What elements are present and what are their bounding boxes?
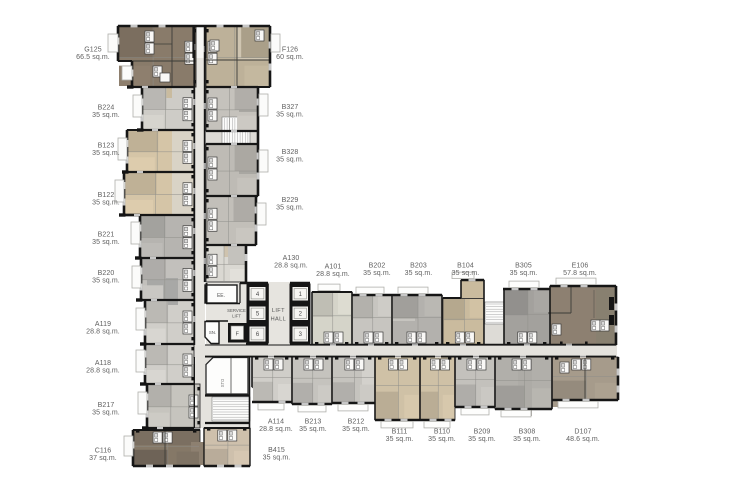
svg-text:35 sq.m.: 35 sq.m. bbox=[92, 200, 120, 207]
svg-text:B212: B212 bbox=[348, 419, 365, 426]
svg-text:35 sq.m.: 35 sq.m. bbox=[276, 205, 304, 212]
svg-text:35 sq.m.: 35 sq.m. bbox=[92, 239, 120, 246]
svg-text:35 sq.m.: 35 sq.m. bbox=[299, 426, 327, 433]
svg-text:35 sq.m.: 35 sq.m. bbox=[92, 112, 120, 119]
svg-text:B221: B221 bbox=[98, 232, 115, 239]
svg-text:35 sq.m.: 35 sq.m. bbox=[510, 270, 538, 277]
svg-text:57.8 sq.m.: 57.8 sq.m. bbox=[563, 270, 597, 277]
svg-text:35 sq.m.: 35 sq.m. bbox=[363, 270, 391, 277]
svg-text:37 sq.m.: 37 sq.m. bbox=[89, 455, 117, 462]
svg-text:B305: B305 bbox=[515, 263, 532, 270]
svg-text:B203: B203 bbox=[410, 263, 427, 270]
svg-text:EE.: EE. bbox=[217, 293, 225, 299]
svg-text:35 sq.m.: 35 sq.m. bbox=[468, 436, 496, 443]
svg-text:B111: B111 bbox=[392, 429, 408, 436]
svg-text:B213: B213 bbox=[305, 419, 322, 426]
svg-text:SERVICE: SERVICE bbox=[227, 308, 246, 313]
svg-text:35 sq.m.: 35 sq.m. bbox=[92, 278, 120, 285]
svg-text:35 sq.m.: 35 sq.m. bbox=[92, 150, 120, 157]
svg-text:35 sq.m.: 35 sq.m. bbox=[386, 436, 414, 443]
svg-text:STO: STO bbox=[220, 378, 225, 387]
svg-text:B415: B415 bbox=[268, 447, 285, 454]
svg-text:B229: B229 bbox=[282, 197, 299, 204]
svg-text:35 sq.m.: 35 sq.m. bbox=[92, 410, 120, 417]
svg-text:66.5 sq.m.: 66.5 sq.m. bbox=[76, 54, 110, 61]
svg-text:C116: C116 bbox=[95, 447, 112, 454]
svg-text:G125: G125 bbox=[84, 47, 102, 54]
svg-text:SN.: SN. bbox=[209, 330, 216, 335]
svg-text:35 sq.m.: 35 sq.m. bbox=[405, 270, 433, 277]
svg-text:28.8 sq.m.: 28.8 sq.m. bbox=[274, 263, 308, 270]
svg-text:28.8 sq.m.: 28.8 sq.m. bbox=[259, 426, 293, 433]
svg-text:A101: A101 bbox=[325, 264, 342, 271]
svg-text:28.8 sq.m.: 28.8 sq.m. bbox=[86, 329, 120, 336]
svg-text:B209: B209 bbox=[474, 429, 491, 436]
svg-text:35 sq.m.: 35 sq.m. bbox=[428, 436, 456, 443]
svg-text:B217: B217 bbox=[98, 402, 115, 409]
svg-text:B123: B123 bbox=[98, 143, 115, 150]
svg-text:B327: B327 bbox=[282, 104, 299, 111]
svg-text:35 sq.m.: 35 sq.m. bbox=[452, 270, 480, 277]
svg-text:A119: A119 bbox=[95, 321, 111, 328]
svg-text:B224: B224 bbox=[98, 105, 115, 112]
svg-text:A114: A114 bbox=[268, 419, 284, 426]
svg-text:D107: D107 bbox=[574, 429, 591, 436]
svg-text:A130: A130 bbox=[283, 255, 300, 262]
svg-text:35 sq.m.: 35 sq.m. bbox=[513, 436, 541, 443]
svg-text:LIFT: LIFT bbox=[272, 308, 285, 314]
svg-text:B308: B308 bbox=[519, 429, 536, 436]
svg-text:35 sq.m.: 35 sq.m. bbox=[276, 112, 304, 119]
svg-text:B122: B122 bbox=[98, 192, 115, 199]
svg-text:F126: F126 bbox=[282, 47, 298, 54]
svg-text:A118: A118 bbox=[95, 360, 111, 367]
svg-text:48.6 sq.m.: 48.6 sq.m. bbox=[566, 436, 600, 443]
svg-text:35 sq.m.: 35 sq.m. bbox=[263, 455, 291, 462]
svg-text:HALL: HALL bbox=[271, 317, 287, 323]
svg-text:35 sq.m.: 35 sq.m. bbox=[342, 426, 370, 433]
svg-text:28.8 sq.m.: 28.8 sq.m. bbox=[316, 271, 350, 278]
svg-text:28.8 sq.m.: 28.8 sq.m. bbox=[86, 368, 120, 375]
svg-text:E106: E106 bbox=[572, 263, 589, 270]
svg-text:B110: B110 bbox=[434, 429, 450, 436]
svg-text:B104: B104 bbox=[457, 263, 474, 270]
svg-text:B202: B202 bbox=[369, 263, 386, 270]
svg-text:60 sq.m.: 60 sq.m. bbox=[276, 54, 304, 61]
svg-text:LIFT: LIFT bbox=[232, 314, 241, 319]
svg-text:35 sq.m.: 35 sq.m. bbox=[276, 157, 304, 164]
svg-text:B328: B328 bbox=[282, 149, 299, 156]
svg-text:B220: B220 bbox=[98, 270, 115, 277]
